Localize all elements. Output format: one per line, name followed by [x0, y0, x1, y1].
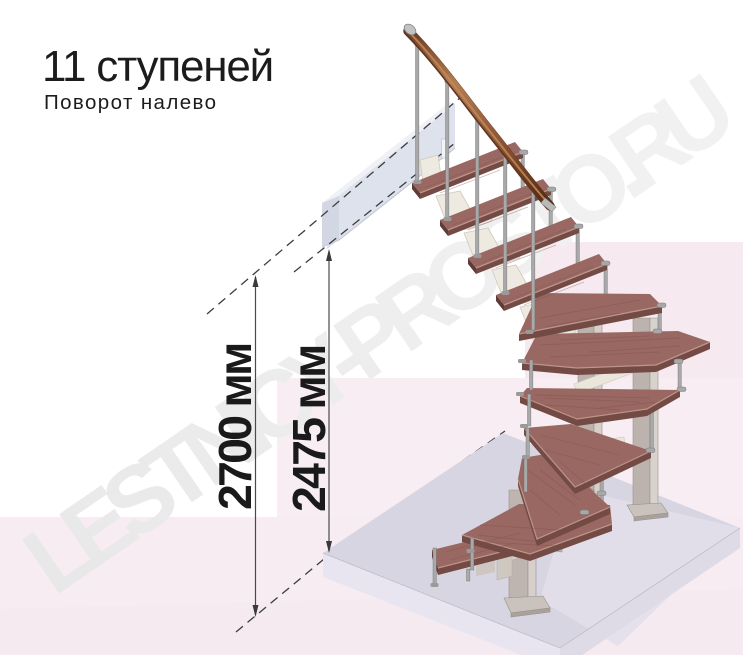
svg-text:Поворот налево: Поворот налево: [44, 91, 217, 114]
svg-text:11 ступеней: 11 ступеней: [42, 42, 273, 91]
svg-text:2475 мм: 2475 мм: [283, 346, 335, 512]
svg-text:2700 мм: 2700 мм: [209, 344, 261, 510]
